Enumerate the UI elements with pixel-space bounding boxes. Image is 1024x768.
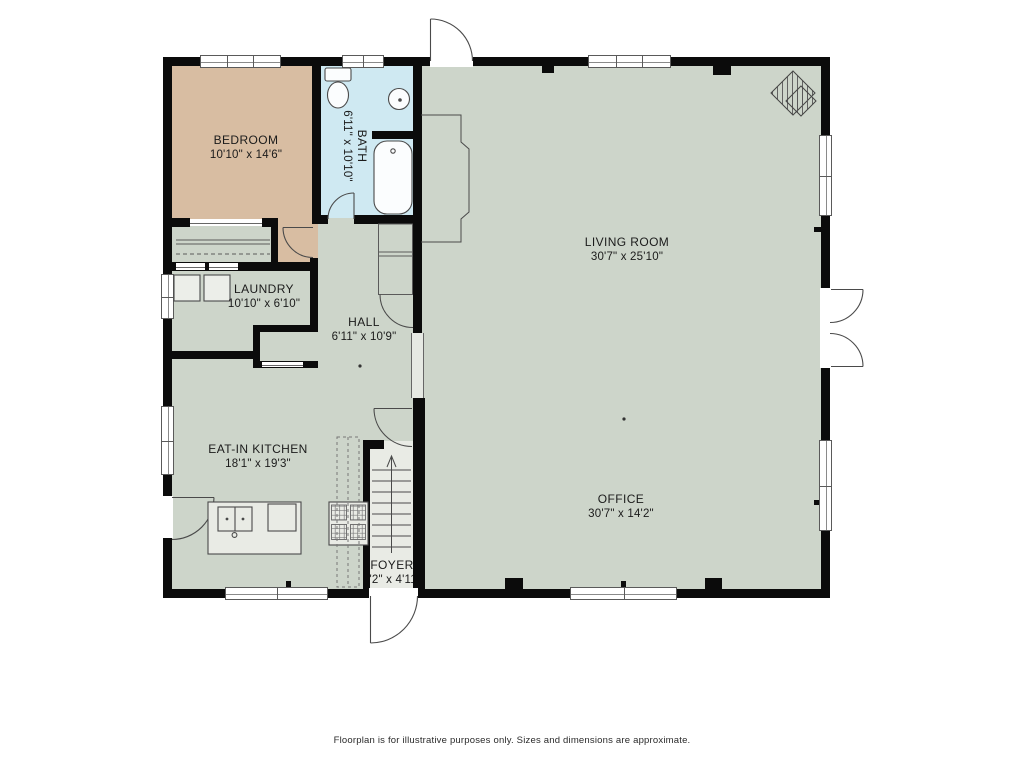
chimney-outline <box>421 115 469 242</box>
bath-door-swing <box>328 193 354 219</box>
room-name: OFFICE <box>588 492 654 507</box>
room-name: LIVING ROOM <box>585 235 669 250</box>
room-dims: 10'10" x 6'10" <box>228 297 300 312</box>
room-dims: 6'11" x 10'9" <box>332 330 397 345</box>
room-label-office: OFFICE 30'7" x 14'2" <box>588 492 654 522</box>
room-label-hall: HALL 6'11" x 10'9" <box>332 315 397 345</box>
room-label-kitchen: EAT-IN KITCHEN 18'1" x 19'3" <box>208 442 307 472</box>
foyer-entry-door-swing <box>371 596 418 643</box>
hall-closet <box>379 224 414 328</box>
room-label-bedroom: BEDROOM 10'10" x 14'6" <box>210 133 282 163</box>
kitchen-island <box>208 502 301 554</box>
floor-marks <box>358 364 625 420</box>
french-doors-swing <box>830 290 863 367</box>
disclaimer-text: Floorplan is for illustrative purposes o… <box>0 735 1024 746</box>
floorplan-canvas: BEDROOM 10'10" x 14'6" BATH 6'11" x 10'1… <box>0 0 1024 768</box>
room-name: LAUNDRY <box>228 282 300 297</box>
bedroom-door-swing <box>283 228 313 258</box>
staircase <box>372 456 411 553</box>
room-name: BEDROOM <box>210 133 282 148</box>
living-room-entry-door-swing <box>431 19 473 61</box>
room-label-bath: BATH 6'11" x 10'10" <box>339 110 369 181</box>
room-name: BATH <box>354 110 369 181</box>
room-dims: 30'7" x 25'10" <box>585 250 669 265</box>
room-label-laundry: LAUNDRY 10'10" x 6'10" <box>228 282 300 312</box>
bathtub <box>374 141 412 214</box>
fireplace-diamond <box>771 71 816 116</box>
bathroom-sink <box>389 89 410 110</box>
room-dims: 18'1" x 19'3" <box>208 457 307 472</box>
room-name: HALL <box>332 315 397 330</box>
bedroom-closet-shelves <box>176 240 270 254</box>
room-name: EAT-IN KITCHEN <box>208 442 307 457</box>
room-dims: 6'11" x 10'10" <box>339 110 354 181</box>
plan-linework <box>0 0 1024 768</box>
toilet <box>325 68 351 108</box>
room-dims: 30'7" x 14'2" <box>588 507 654 522</box>
room-dims: 10'10" x 14'6" <box>210 148 282 163</box>
stair-door-swing <box>374 409 412 447</box>
washer-dryer <box>174 275 230 301</box>
room-label-living-room: LIVING ROOM 30'7" x 25'10" <box>585 235 669 265</box>
